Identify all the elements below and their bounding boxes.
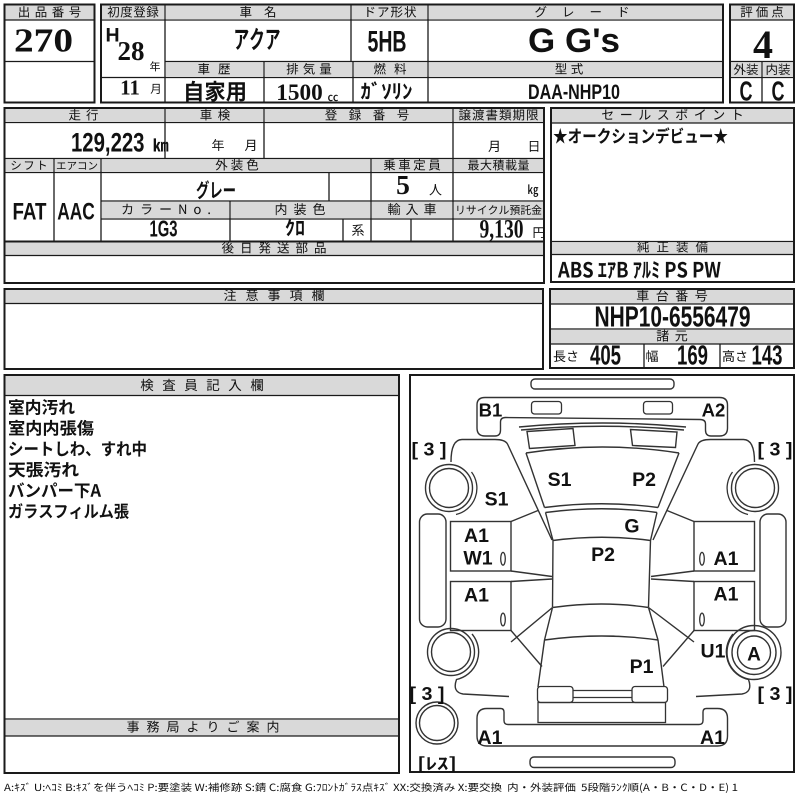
svg-text:G G's: G G's (528, 22, 620, 60)
svg-text:U1: U1 (701, 641, 726, 663)
svg-text:C: C (772, 76, 785, 107)
svg-text:P1: P1 (630, 656, 654, 678)
svg-text:270: 270 (14, 23, 73, 60)
svg-text:28: 28 (118, 36, 145, 66)
svg-text:A1: A1 (714, 548, 739, 570)
svg-text:AAC: AAC (57, 199, 95, 226)
svg-text:[ 3 ]: [ 3 ] (410, 684, 445, 704)
svg-text:129,223: 129,223 (71, 128, 145, 158)
svg-text:[ 3 ]: [ 3 ] (412, 440, 447, 460)
svg-text:[ 3 ]: [ 3 ] (758, 440, 793, 460)
svg-text:143: 143 (752, 340, 783, 371)
svg-text:P2: P2 (632, 469, 656, 491)
svg-text:9,130: 9,130 (480, 215, 524, 244)
svg-text:5: 5 (396, 169, 410, 200)
svg-text:5HB: 5HB (368, 26, 407, 59)
svg-text:A1: A1 (464, 525, 489, 547)
svg-text:P2: P2 (591, 544, 615, 566)
svg-text:169: 169 (677, 340, 708, 371)
svg-text:DAA-NHP10: DAA-NHP10 (528, 80, 620, 104)
svg-text:C: C (740, 76, 753, 107)
svg-text:S1: S1 (548, 469, 572, 491)
svg-text:A1: A1 (464, 585, 489, 607)
svg-text:FAT: FAT (13, 199, 47, 226)
svg-text:A1: A1 (478, 727, 503, 749)
svg-text:W1: W1 (463, 548, 492, 570)
svg-text:1G3: 1G3 (150, 216, 178, 242)
svg-text:11: 11 (120, 76, 140, 100)
svg-text:405: 405 (590, 340, 621, 371)
svg-text:[ 3 ]: [ 3 ] (758, 684, 793, 704)
svg-text:A1: A1 (700, 727, 725, 749)
svg-text:A2: A2 (702, 400, 726, 421)
svg-text:A1: A1 (714, 584, 739, 606)
svg-text:B1: B1 (479, 400, 503, 421)
svg-text:1500: 1500 (276, 80, 323, 105)
svg-text:S1: S1 (485, 489, 509, 511)
svg-text:A: A (747, 645, 761, 666)
svg-text:4: 4 (753, 22, 773, 67)
svg-text:G: G (624, 516, 639, 538)
